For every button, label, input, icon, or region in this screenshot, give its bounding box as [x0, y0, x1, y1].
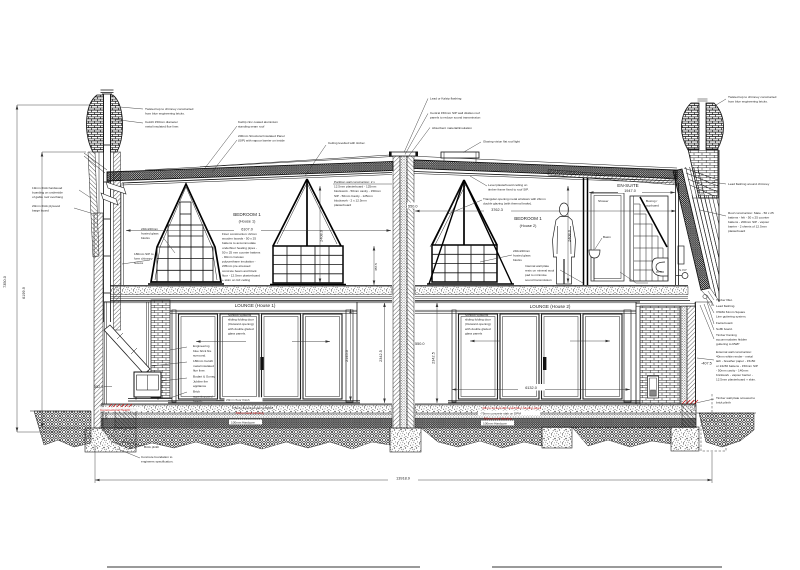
svg-text:Basin: Basin [603, 235, 611, 239]
svg-text:-50mm sand blinding: -50mm sand blinding [483, 417, 512, 421]
svg-text:Floor construction: 22mm: Floor construction: 22mm [222, 232, 257, 236]
svg-text:(SIP) with vapour barrier on i: (SIP) with vapour barrier on inside [238, 139, 285, 143]
svg-text:3762.3: 3762.3 [491, 208, 503, 212]
svg-text:Jubilee fire: Jubilee fire [193, 379, 208, 383]
svg-text:552.5: 552.5 [94, 385, 104, 389]
svg-text:accommodates hidden: accommodates hidden [716, 338, 747, 342]
svg-text:LOUNGE (House 2): LOUNGE (House 2) [530, 304, 571, 309]
svg-text:lath - breather paper - 15x50: lath - breather paper - 15x50 [716, 359, 755, 363]
svg-text:blockwork - 50mm cavity - 150m: blockwork - 50mm cavity - 150mm [334, 189, 381, 193]
svg-text:double glazing (with thermal b: double glazing (with thermal brake). [483, 202, 532, 206]
svg-text:Level plasterboard ceiling on: Level plasterboard ceiling on [488, 183, 528, 187]
svg-text:Facia board.: Facia board. [716, 321, 733, 325]
svg-text:- 90mm Celotex: - 90mm Celotex [222, 255, 244, 259]
svg-text:Sunfold Systems: Sunfold Systems [465, 313, 489, 317]
svg-text:Timber wall plate screwed to: Timber wall plate screwed to [716, 396, 755, 400]
svg-text:Constructional Hearth: Constructional Hearth [100, 408, 130, 412]
svg-text:Lead flashing.: Lead flashing. [716, 304, 735, 308]
svg-text:Triangular opening metal windo: Triangular opening metal windows with 24… [483, 197, 546, 201]
svg-text:wooden boards - 50 x 25: wooden boards - 50 x 25 [222, 237, 256, 241]
svg-text:240x240mm: 240x240mm [513, 249, 530, 253]
svg-text:appliance: appliance [193, 384, 207, 388]
svg-text:100mm Hardcore: 100mm Hardcore [231, 421, 255, 425]
svg-text:Timber fillet.: Timber fillet. [716, 298, 733, 302]
svg-text:from blue engineering bricks.: from blue engineering bricks. [145, 112, 185, 116]
svg-text:frosted glass: frosted glass [513, 254, 531, 258]
svg-text:200mm Structural Insulated Pan: 200mm Structural Insulated Panel [238, 134, 285, 138]
svg-text:metal insulated: metal insulated [193, 364, 214, 368]
svg-text:rests on mineral wool: rests on mineral wool [525, 269, 555, 273]
svg-text:EN-SUITE: EN-SUITE [617, 183, 638, 188]
svg-text:LOUNGE (House 1): LOUNGE (House 1) [235, 303, 276, 308]
svg-text:Glazing vision flat roof light: Glazing vision flat roof light [483, 140, 520, 144]
svg-text:40mm white render - metal: 40mm white render - metal [716, 355, 753, 359]
svg-text:550.0: 550.0 [408, 205, 418, 209]
svg-text:+ skim on GF ceiling: + skim on GF ceiling [222, 278, 250, 282]
svg-text:19mm thick hardwood: 19mm thick hardwood [32, 186, 63, 190]
svg-text:20mm floor finish: 20mm floor finish [226, 398, 250, 402]
svg-text:blocks: blocks [513, 258, 522, 262]
svg-text:(House 2): (House 2) [520, 224, 537, 228]
svg-text:boarding on underside: boarding on underside [32, 191, 63, 195]
svg-text:polyurethane insulation -: polyurethane insulation - [222, 260, 256, 264]
svg-text:hearth.: hearth. [193, 399, 203, 403]
svg-text:Ceiling levelled with timber.: Ceiling levelled with timber. [328, 141, 365, 145]
svg-text:13918.9: 13918.9 [396, 477, 410, 481]
svg-text:100mm Hardcore: 100mm Hardcore [483, 422, 507, 426]
svg-text:(Outward opening): (Outward opening) [465, 322, 491, 326]
svg-text:-75mm concrete slab on DPM: -75mm concrete slab on DPM [480, 412, 521, 416]
svg-text:cupboard: cupboard [646, 204, 659, 208]
svg-text:pad to minimise: pad to minimise [525, 273, 547, 277]
svg-text:brickwork - vapour barrier -: brickwork - vapour barrier - [716, 373, 753, 377]
svg-text:-407.5: -407.5 [701, 362, 712, 366]
svg-text:-75mm concrete slab on DPM: -75mm concrete slab on DPM [232, 406, 273, 410]
svg-text:2408.0: 2408.0 [320, 230, 324, 242]
svg-text:standing seam roof: standing seam roof [238, 125, 264, 129]
svg-text:Soffit board.: Soffit board. [716, 327, 733, 331]
svg-text:40mm screed with underfloor he: 40mm screed with underfloor heating pipe… [482, 406, 542, 410]
svg-text:of gable roof overhang: of gable roof overhang [32, 195, 63, 199]
svg-text:SIP - 50mm Cavity - 125mm: SIP - 50mm Cavity - 125mm [334, 194, 373, 198]
svg-text:Boxing /: Boxing / [646, 199, 657, 203]
svg-text:20mm thick plywood: 20mm thick plywood [32, 204, 60, 208]
svg-text:barge board: barge board [32, 209, 49, 213]
svg-text:550.0: 550.0 [415, 342, 425, 346]
svg-text:205mm pre-stressed: 205mm pre-stressed [222, 264, 251, 268]
svg-text:sliding folding door: sliding folding door [465, 318, 491, 322]
svg-text:blockwork - 2 x 12.5mm: blockwork - 2 x 12.5mm [334, 198, 367, 202]
svg-text:blocks: blocks [141, 236, 150, 240]
svg-text:BEDROOM 1: BEDROOM 1 [233, 212, 261, 217]
svg-text:W.C.: W.C. [656, 270, 663, 274]
svg-text:425.0: 425.0 [104, 412, 108, 420]
svg-text:Timber framing: Timber framing [716, 333, 737, 337]
svg-text:plasterboard: plasterboard [334, 203, 351, 207]
svg-text:Celofit 150mm diameter: Celofit 150mm diameter [145, 120, 178, 124]
svg-text:-50mm sand blinding: -50mm sand blinding [235, 411, 264, 415]
svg-text:underfloor heating pipes -: underfloor heating pipes - [222, 246, 257, 250]
svg-text:External wall construction:: External wall construction: [716, 350, 752, 354]
svg-text:2408.0: 2408.0 [568, 230, 572, 242]
svg-text:Lead or Kalzip flashing: Lead or Kalzip flashing [430, 97, 462, 101]
svg-text:Internal wall plate: Internal wall plate [525, 264, 549, 268]
svg-text:guttering to RWP: guttering to RWP [716, 342, 740, 346]
svg-text:flue liner.: flue liner. [193, 369, 206, 373]
svg-text:7350.0: 7350.0 [3, 276, 7, 288]
svg-text:superimposed: superimposed [193, 394, 213, 398]
svg-text:180mm Celofit: 180mm Celofit [193, 359, 213, 363]
svg-text:Sunfold Systems: Sunfold Systems [228, 313, 252, 317]
svg-text:6132.0: 6132.0 [525, 386, 537, 390]
svg-text:recess: recess [134, 261, 144, 265]
svg-text:timber frame fixed to roof SIP: timber frame fixed to roof SIP. [488, 188, 529, 192]
svg-text:Central 150mm SIP wall divides: Central 150mm SIP wall divides roof [430, 111, 480, 115]
svg-text:Twisted top to chimney constru: Twisted top to chimney constructed [728, 95, 777, 99]
svg-text:OSMA 61mm Square: OSMA 61mm Square [716, 310, 746, 314]
svg-text:sliding folding door: sliding folding door [228, 318, 254, 322]
svg-text:floor - 12.5mm plasterboard: floor - 12.5mm plasterboard [222, 273, 260, 277]
svg-text:Line guttering system.: Line guttering system. [716, 315, 746, 319]
svg-text:- 50mm cavity - 140mm: - 50mm cavity - 140mm [716, 368, 749, 372]
svg-text:Lead flashing around chimney: Lead flashing around chimney [728, 182, 770, 186]
svg-text:sound transmission: sound transmission [525, 278, 552, 282]
svg-text:2342.5: 2342.5 [432, 352, 436, 364]
svg-text:with double glazed: with double glazed [465, 327, 491, 331]
svg-text:Brick plinth: Brick plinth [144, 445, 159, 449]
svg-text:Twisted top to chimney constru: Twisted top to chimney constructed [145, 107, 194, 111]
svg-text:6199.9: 6199.9 [22, 287, 26, 299]
svg-text:S.V.P: S.V.P [679, 268, 687, 272]
svg-text:Absorbent material/insulation: Absorbent material/insulation [432, 126, 472, 130]
svg-text:Engineering: Engineering [193, 344, 210, 348]
svg-text:brick plinth: brick plinth [716, 401, 731, 405]
svg-text:180mm SIP to: 180mm SIP to [134, 252, 154, 256]
svg-text:battens to accommodate: battens to accommodate [222, 241, 256, 245]
svg-text:50 x 25 mm counter battens: 50 x 25 mm counter battens [222, 250, 261, 254]
svg-text:Bodart & Gonay: Bodart & Gonay [193, 375, 215, 379]
svg-text:357.5: 357.5 [374, 263, 378, 271]
svg-text:glass panels.: glass panels. [228, 331, 246, 335]
svg-text:battens - 200mm SIP - vapour: battens - 200mm SIP - vapour [728, 220, 769, 224]
svg-text:2145.0: 2145.0 [345, 350, 349, 362]
svg-text:glass panels: glass panels [465, 331, 483, 335]
svg-text:(Outward opening): (Outward opening) [228, 322, 254, 326]
svg-text:battens - felt - 50 x 25 count: battens - felt - 50 x 25 counter [728, 216, 769, 220]
svg-text:panels to reduce sound transmi: panels to reduce sound transmission [430, 116, 481, 120]
svg-text:blue brick fire: blue brick fire [193, 349, 212, 353]
svg-text:from blue engineering bricks.: from blue engineering bricks. [728, 100, 768, 104]
svg-text:240x240mm: 240x240mm [141, 227, 158, 231]
svg-text:2342.5: 2342.5 [379, 350, 383, 362]
svg-text:barrier - 2 sheets of 12.5mm: barrier - 2 sheets of 12.5mm [728, 225, 767, 229]
svg-text:1947.0: 1947.0 [624, 189, 636, 193]
svg-text:surround.: surround. [193, 354, 206, 358]
svg-text:form chimney: form chimney [134, 257, 153, 261]
svg-text:metal insulated flue liner.: metal insulated flue liner. [145, 125, 179, 129]
svg-text:plasterboard: plasterboard [728, 229, 745, 233]
svg-text:Concrete foundation to: Concrete foundation to [141, 455, 173, 459]
svg-text:or 24x50 battens - 150mm SIP: or 24x50 battens - 150mm SIP [716, 364, 758, 368]
svg-text:Partition wall construction: 2: Partition wall construction: 2 x [334, 180, 375, 184]
svg-text:6107.0: 6107.0 [241, 228, 253, 232]
svg-text:Brick: Brick [193, 390, 200, 394]
svg-text:with double glazed: with double glazed [228, 327, 254, 331]
svg-text:(House 1): (House 1) [239, 220, 256, 224]
svg-text:Shower: Shower [598, 199, 609, 203]
svg-text:engineers specification.: engineers specification. [141, 460, 173, 464]
svg-text:concrete beam and block: concrete beam and block [222, 269, 257, 273]
svg-text:BEDROOM 1: BEDROOM 1 [514, 216, 542, 221]
svg-text:Kalzip zinc coated aluminium: Kalzip zinc coated aluminium [238, 120, 278, 124]
svg-text:12.5mm plasterboard + skim.: 12.5mm plasterboard + skim. [716, 378, 756, 382]
svg-text:Roof construction: Slate - 50: Roof construction: Slate - 50 x 25 [728, 211, 774, 215]
svg-text:12.5mm plasterboard - 125mm: 12.5mm plasterboard - 125mm [334, 185, 377, 189]
svg-text:frosted glass: frosted glass [141, 232, 159, 236]
